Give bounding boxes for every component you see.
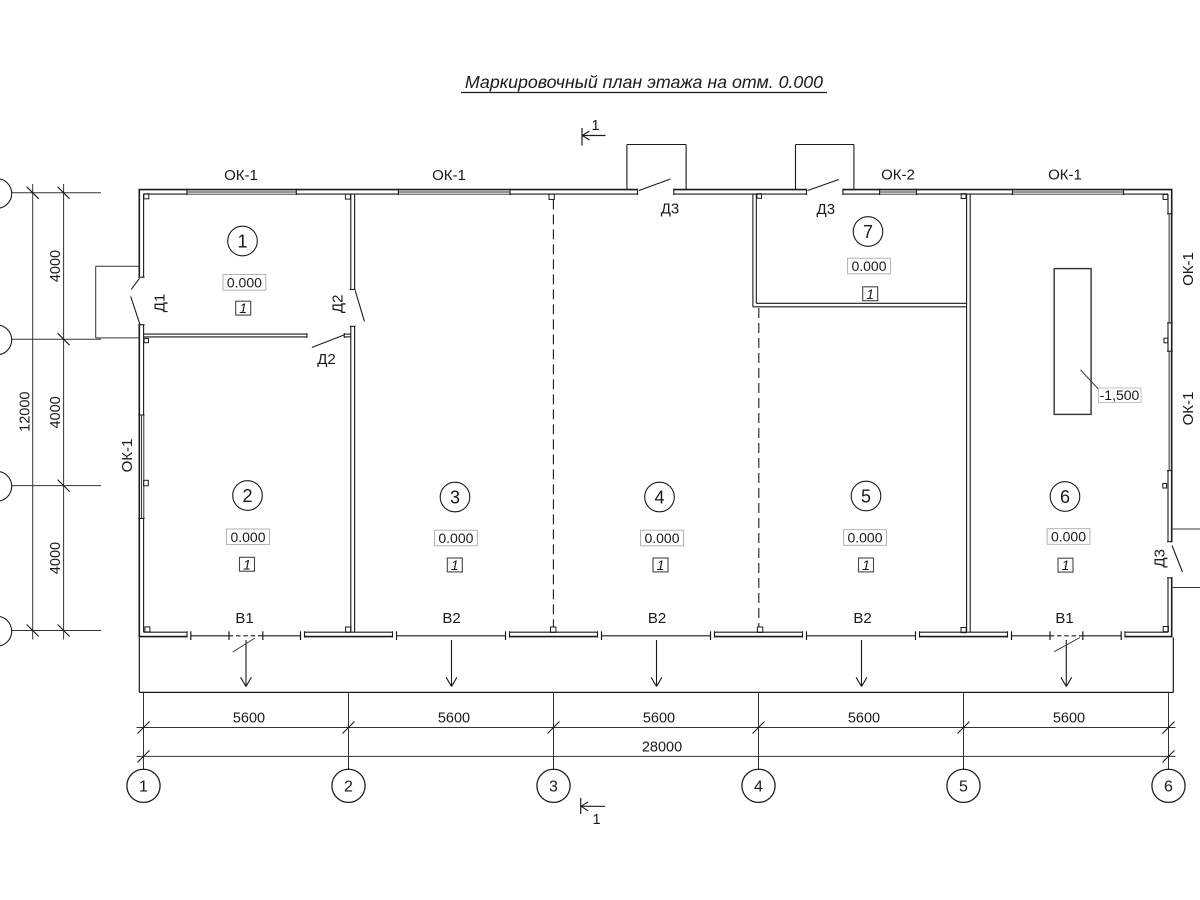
svg-text:3: 3 xyxy=(450,487,460,507)
svg-text:1: 1 xyxy=(592,812,600,828)
svg-text:0.000: 0.000 xyxy=(227,274,262,290)
svg-text:Д2: Д2 xyxy=(317,351,336,368)
svg-text:6: 6 xyxy=(1164,779,1173,796)
svg-text:0.000: 0.000 xyxy=(230,529,265,545)
svg-text:Д1: Д1 xyxy=(152,294,169,313)
svg-text:5600: 5600 xyxy=(1053,711,1085,727)
svg-text:2: 2 xyxy=(242,486,252,506)
svg-text:28000: 28000 xyxy=(642,740,682,756)
svg-text:5600: 5600 xyxy=(233,711,265,727)
svg-text:В2: В2 xyxy=(853,610,871,627)
svg-text:В2: В2 xyxy=(442,610,460,627)
svg-text:0.000: 0.000 xyxy=(847,530,882,546)
svg-text:0.000: 0.000 xyxy=(1051,529,1086,545)
svg-text:1: 1 xyxy=(657,557,665,573)
svg-text:5600: 5600 xyxy=(643,711,675,727)
svg-text:Д3: Д3 xyxy=(1152,549,1169,568)
svg-text:1: 1 xyxy=(1062,557,1070,573)
svg-text:1: 1 xyxy=(866,286,874,302)
svg-text:4: 4 xyxy=(754,779,763,796)
svg-text:0.000: 0.000 xyxy=(438,530,473,546)
svg-text:7: 7 xyxy=(863,222,873,242)
svg-text:-1,500: -1,500 xyxy=(1100,387,1140,403)
svg-text:4000: 4000 xyxy=(48,250,64,282)
svg-text:1: 1 xyxy=(237,231,247,251)
svg-text:5: 5 xyxy=(959,779,968,796)
svg-text:12000: 12000 xyxy=(18,391,34,431)
svg-text:1: 1 xyxy=(139,779,148,796)
svg-text:0.000: 0.000 xyxy=(851,258,886,274)
svg-text:5600: 5600 xyxy=(848,711,880,727)
svg-text:ОК-1: ОК-1 xyxy=(1180,392,1197,426)
svg-text:В2: В2 xyxy=(648,610,666,627)
svg-text:6: 6 xyxy=(1060,487,1070,507)
svg-text:В1: В1 xyxy=(1055,610,1073,627)
svg-text:Д3: Д3 xyxy=(817,201,836,218)
svg-text:4000: 4000 xyxy=(48,396,64,428)
svg-text:ОК-1: ОК-1 xyxy=(119,439,136,473)
svg-text:1: 1 xyxy=(243,556,251,572)
svg-text:2: 2 xyxy=(344,779,353,796)
svg-text:1: 1 xyxy=(591,118,599,134)
svg-text:ОК-1: ОК-1 xyxy=(432,167,466,184)
svg-text:1: 1 xyxy=(451,557,459,573)
svg-text:4000: 4000 xyxy=(48,542,64,574)
svg-text:ОК-1: ОК-1 xyxy=(1180,252,1197,286)
svg-text:Д2: Д2 xyxy=(330,295,347,314)
svg-text:4: 4 xyxy=(654,487,664,507)
svg-text:ОК-1: ОК-1 xyxy=(224,167,258,184)
svg-text:Маркировочный план этажа на от: Маркировочный план этажа на отм. 0.000 xyxy=(465,72,823,92)
svg-text:ОК-1: ОК-1 xyxy=(1048,167,1082,184)
svg-text:5: 5 xyxy=(861,486,871,506)
svg-text:В1: В1 xyxy=(235,610,253,627)
svg-text:1: 1 xyxy=(239,300,247,316)
svg-text:ОК-2: ОК-2 xyxy=(881,167,915,184)
svg-text:5600: 5600 xyxy=(438,711,470,727)
svg-text:3: 3 xyxy=(549,779,558,796)
svg-text:Д3: Д3 xyxy=(661,201,680,218)
svg-text:0.000: 0.000 xyxy=(644,530,679,546)
svg-text:1: 1 xyxy=(862,557,870,573)
